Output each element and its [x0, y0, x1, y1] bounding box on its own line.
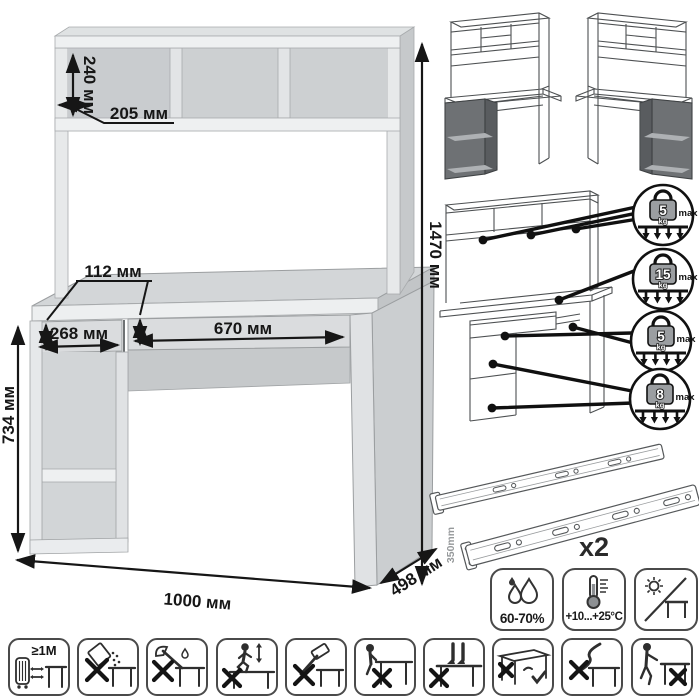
slide-length-label: 350mm: [445, 527, 457, 563]
load-unit: kg: [659, 217, 668, 226]
no-axe-icon: [148, 640, 206, 694]
load-max-label: max: [676, 392, 696, 403]
furniture-dimension-diagram: 240 мм 205 мм 1470 мм 112 мм 268 мм 670 …: [0, 0, 699, 700]
heat-distance-icon: ≥1М: [10, 640, 68, 694]
load-limit-badge-drawer: 5 kg max: [631, 311, 696, 371]
min-distance-label: ≥1М: [31, 643, 56, 658]
total-width-label: 1000 мм: [163, 589, 232, 613]
no-sitting-icon: [356, 640, 414, 694]
load-limit-badge-side-shelves: 8 kg max: [630, 369, 695, 429]
no-jumping-icon: [218, 640, 276, 694]
humidity-label: 60-70%: [500, 611, 544, 626]
left-section-width-label: 268 мм: [50, 324, 108, 343]
callout-leaders: [479, 207, 638, 412]
thermometer-icon: [573, 574, 615, 610]
no-dragging-icon: [633, 640, 691, 694]
shelf-depth-label: 205 мм: [110, 104, 168, 123]
proper-lifting-icon: [494, 640, 552, 694]
temperature-label: +10...+25°C: [565, 611, 622, 623]
load-limit-badge-shelves: 5 kg max: [633, 185, 698, 245]
no-hammer-icon: [287, 640, 345, 694]
load-unit: kg: [659, 281, 668, 290]
load-max-label: max: [679, 208, 699, 219]
env-sunlight-box: [634, 568, 698, 631]
picto-no-standing: [423, 638, 485, 696]
load-limit-diagram: 5 kg max 15 kg max: [440, 183, 699, 437]
drawer-slides-drawing: 350mm x2: [425, 428, 699, 574]
load-unit: kg: [656, 401, 665, 410]
dim-desk-height: 734 мм: [0, 327, 18, 551]
front-height-label: 112 мм: [84, 262, 141, 281]
load-limit-badge-desktop: 15 kg max: [633, 249, 698, 309]
picto-keep-1m-from-heat: ≥1М: [8, 638, 70, 696]
picto-no-dragging: [631, 638, 693, 696]
env-humidity-box: 60-70%: [490, 568, 554, 631]
picto-lift-from-under-top: [492, 638, 554, 696]
env-temperature-box: +10...+25°C: [562, 568, 626, 631]
load-max-label: max: [677, 334, 697, 345]
hutch: [55, 27, 414, 298]
no-direct-sunlight-icon: [640, 574, 692, 626]
picto-no-spilling: [77, 638, 139, 696]
no-pulling-cord-icon: [563, 640, 621, 694]
desk-height-label: 734 мм: [0, 386, 18, 444]
humidity-drops-icon: [501, 574, 543, 610]
slide-quantity-label: x2: [579, 532, 609, 562]
dim-total-width: 1000 мм: [17, 560, 370, 614]
side-shelf: [42, 469, 116, 482]
no-standing-icon: [425, 640, 483, 694]
main-desk-drawing: 240 мм 205 мм 1470 мм 112 мм 268 мм 670 …: [0, 0, 450, 640]
picto-no-axe: [146, 638, 208, 696]
exploded-desk-drawing: [440, 191, 612, 421]
thumbnail-desk-drawing: [445, 13, 561, 179]
variant-thumbnail-left: [443, 6, 567, 186]
no-spill-icon: [79, 640, 137, 694]
picto-no-pulling-cord: [561, 638, 623, 696]
picto-no-jumping: [216, 638, 278, 696]
load-unit: kg: [657, 343, 666, 352]
drawer-width-label: 670 мм: [214, 319, 272, 338]
variant-thumbnail-right: [568, 6, 696, 186]
picto-no-hammering: [285, 638, 347, 696]
picto-no-sitting: [354, 638, 416, 696]
load-max-label: max: [679, 272, 699, 283]
